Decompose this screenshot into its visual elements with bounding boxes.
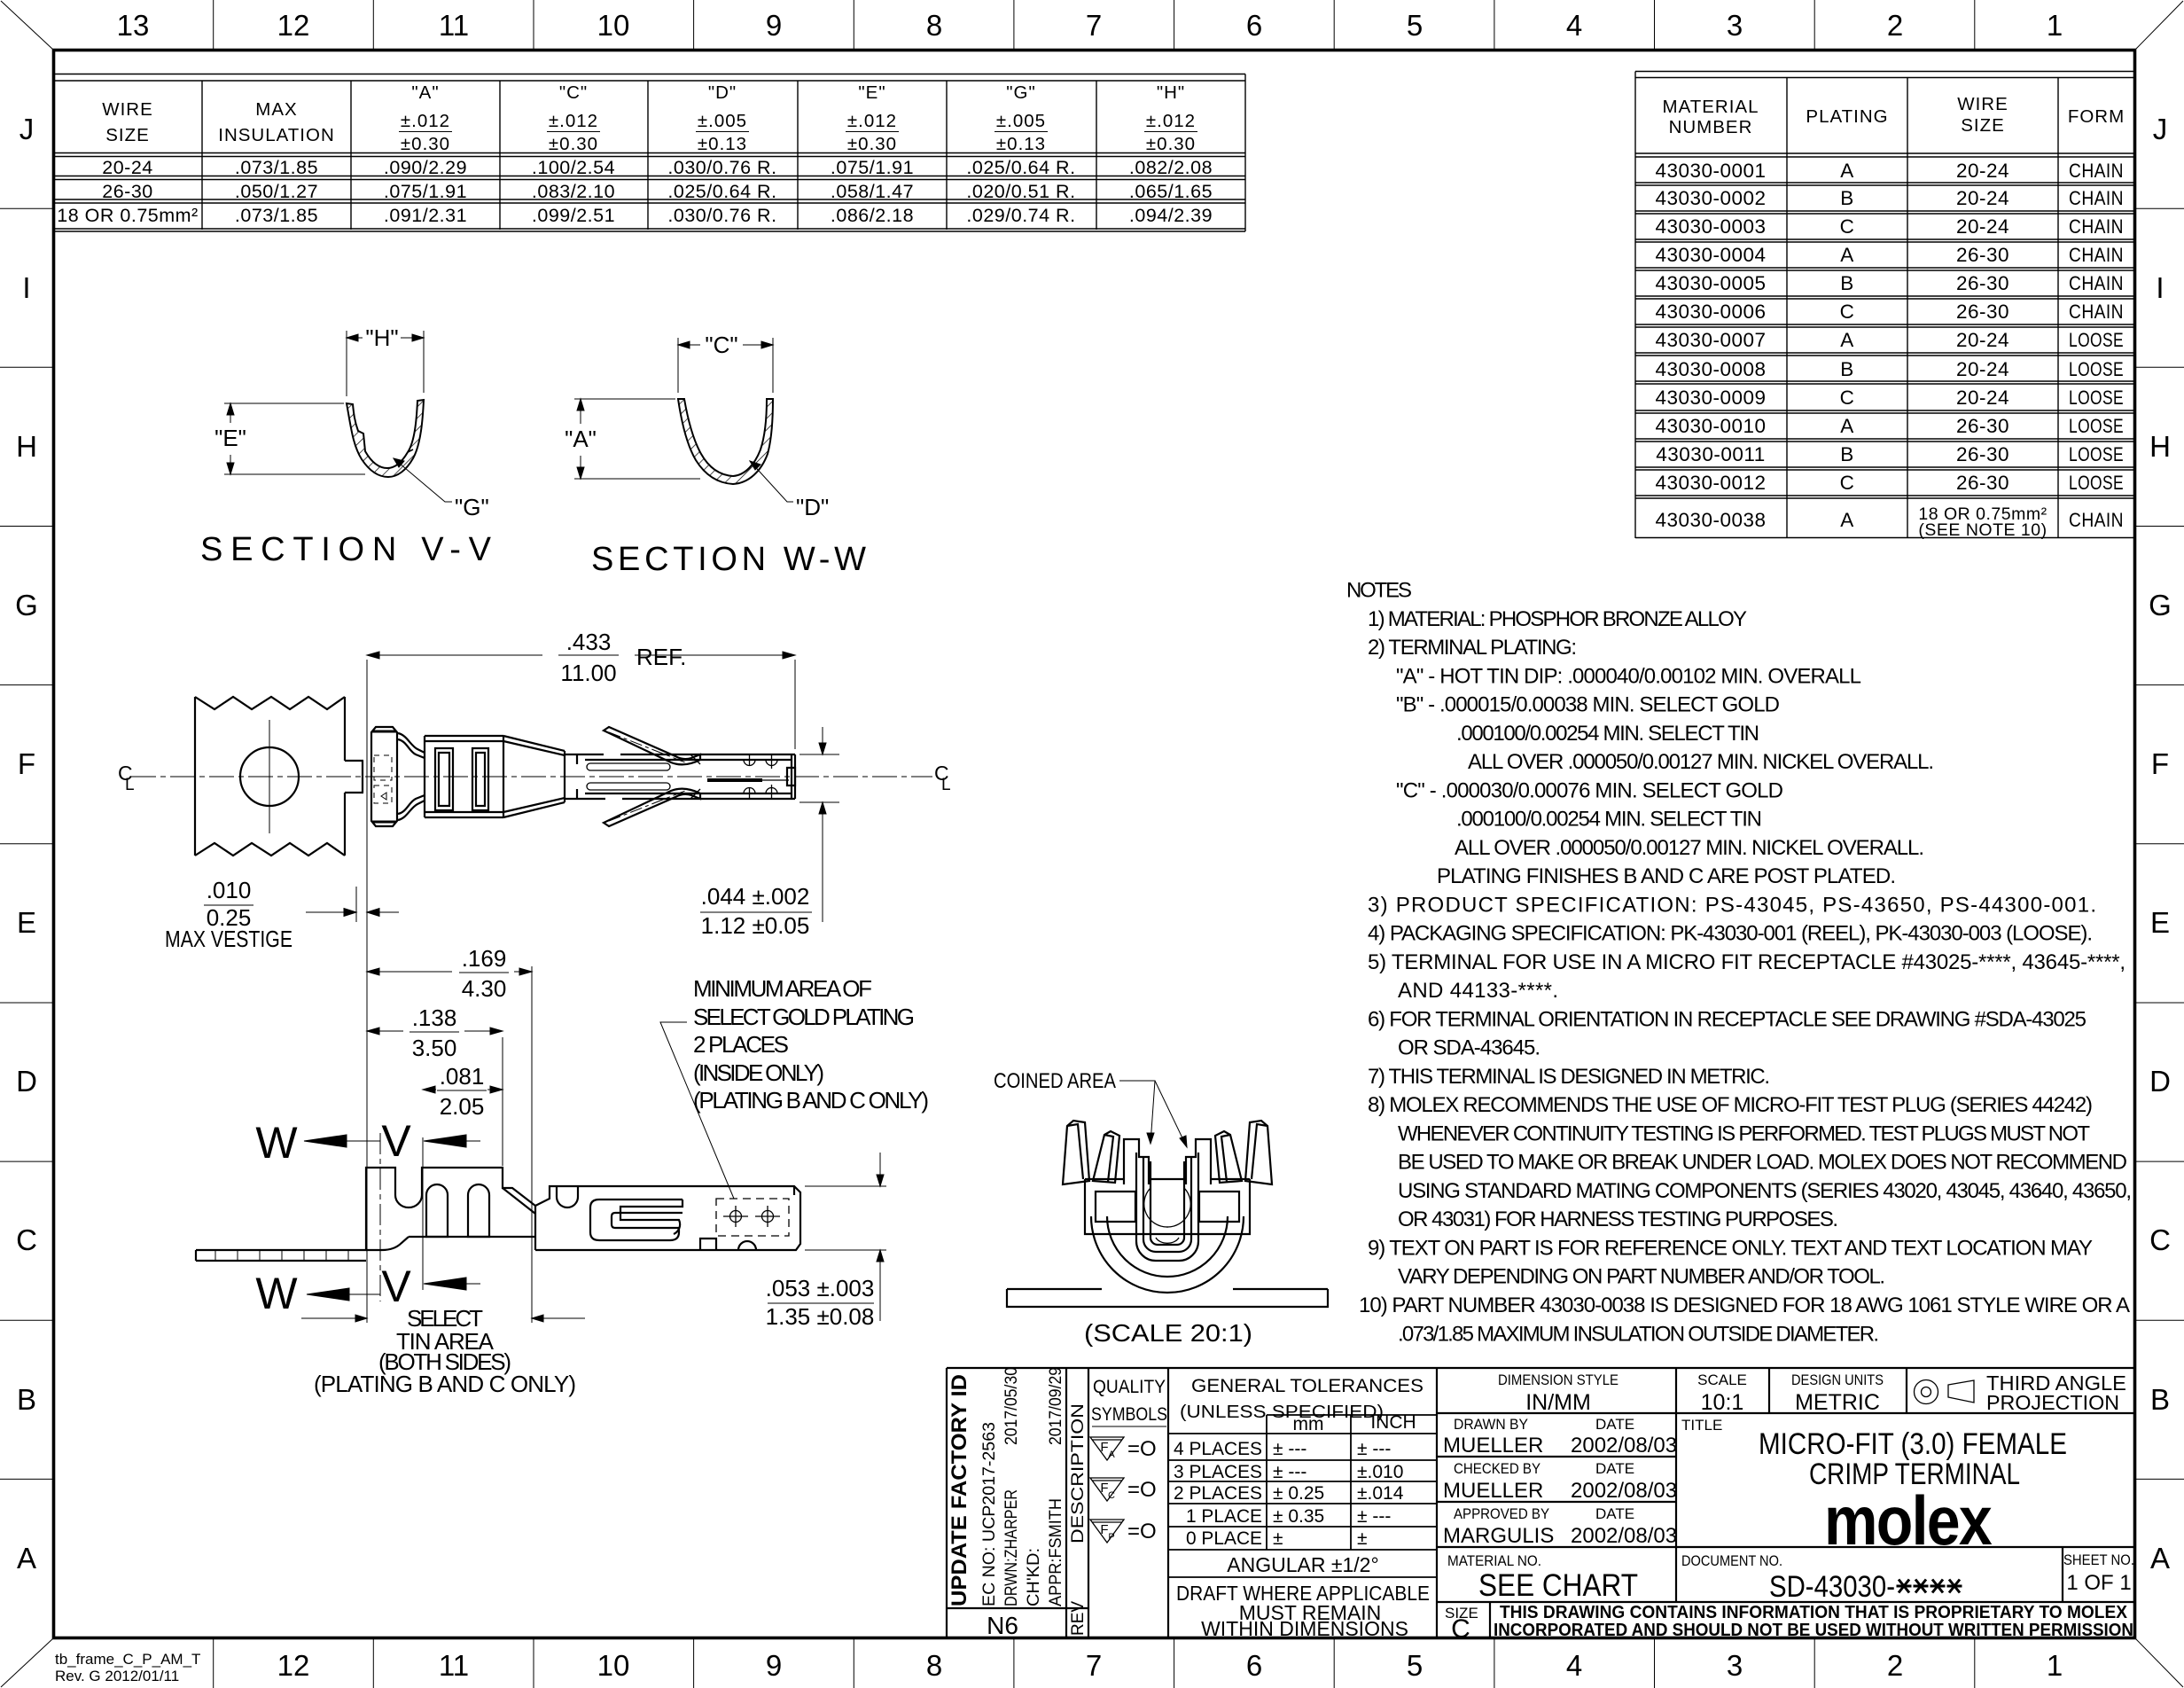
svg-text:DATE: DATE [1595,1416,1634,1433]
svg-text:H: H [2149,430,2171,463]
svg-text:AND 44133-****.: AND 44133-****. [1398,979,1558,1003]
svg-text:BE USED TO MAKE OR BREAK UNDER: BE USED TO MAKE OR BREAK UNDER LOAD. MOL… [1398,1151,2127,1175]
svg-text:F: F [1100,1522,1108,1537]
svg-text:NUMBER: NUMBER [1669,117,1753,137]
svg-text:2002/08/03: 2002/08/03 [1571,1524,1677,1548]
svg-text:10:1: 10:1 [1701,1390,1744,1415]
svg-text:± ---: ± --- [1357,1506,1391,1527]
svg-text:20-24: 20-24 [1956,160,2009,182]
svg-text:2 PLACES: 2 PLACES [693,1031,789,1058]
svg-text:10: 10 [597,9,630,42]
svg-text:.044 ±.002: .044 ±.002 [701,883,810,910]
svg-text:6: 6 [1246,9,1262,42]
svg-text:26-30: 26-30 [1956,301,2009,323]
svg-text:1: 1 [2047,9,2063,42]
svg-text:CHAIN: CHAIN [2069,244,2124,266]
svg-text:26-30: 26-30 [1956,415,2009,437]
svg-text:.138: .138 [412,1004,457,1031]
svg-text:C: C [1840,215,1855,238]
svg-text:"E": "E" [214,425,246,451]
svg-text:±0.30: ±0.30 [1146,134,1196,154]
svg-text:.030/0.76 R.: .030/0.76 R. [667,157,776,178]
svg-text:±0.13: ±0.13 [698,134,747,154]
svg-text:C: C [16,1223,37,1256]
svg-text:MATERIAL NO.: MATERIAL NO. [1447,1552,1541,1569]
svg-text:E: E [17,906,36,939]
svg-text:"C": "C" [559,82,588,103]
svg-text:3: 3 [1727,9,1743,42]
svg-text:DOCUMENT NO.: DOCUMENT NO. [1681,1552,1782,1569]
svg-text:ALL OVER .000050/0.00127 MIN.: ALL OVER .000050/0.00127 MIN. NICKEL OVE… [1468,750,1934,774]
svg-text:"G": "G" [1006,82,1036,103]
svg-text:43030-0008: 43030-0008 [1655,358,1766,380]
svg-text:A: A [1108,1450,1115,1460]
svg-text:±0.30: ±0.30 [401,134,450,154]
svg-text:"A" - HOT TIN DIP: .000040/0.0: "A" - HOT TIN DIP: .000040/0.00102 MIN. … [1396,664,1861,688]
svg-text:OR SDA-43645.: OR SDA-43645. [1398,1036,1540,1060]
svg-text:A: A [1840,509,1854,531]
svg-text:G: G [15,589,38,621]
svg-text:26-30: 26-30 [1956,272,2009,294]
svg-text:2 PLACES: 2 PLACES [1174,1483,1262,1504]
svg-text:2002/08/03: 2002/08/03 [1571,1479,1677,1503]
svg-text:B: B [17,1383,36,1416]
svg-text:.058/1.47: .058/1.47 [831,181,914,202]
svg-text:.050/1.27: .050/1.27 [235,181,318,202]
svg-text:3) PRODUCT SPECIFICATION: PS-4: 3) PRODUCT SPECIFICATION: PS-43045, PS-4… [1368,893,2096,917]
svg-text:.100/2.54: .100/2.54 [532,157,615,178]
svg-text:WHENEVER CONTINUITY TESTING IS: WHENEVER CONTINUITY TESTING IS PERFORMED… [1398,1121,2090,1145]
svg-text:±.005: ±.005 [996,111,1046,131]
svg-text:A: A [1840,160,1854,182]
svg-text:SEE CHART: SEE CHART [1478,1568,1638,1603]
svg-text:4) PACKAGING SPECIFICATION: PK: 4) PACKAGING SPECIFICATION: PK-43030-001… [1368,922,2093,946]
svg-text:NOTES: NOTES [1346,579,1412,603]
svg-text:12: 12 [277,1649,310,1682]
svg-text:UPDATE FACTORY ID: UPDATE FACTORY ID [948,1374,971,1606]
svg-text:±.012: ±.012 [549,111,598,131]
svg-text:1 OF 1: 1 OF 1 [2066,1571,2131,1595]
svg-text:3.50: 3.50 [412,1035,457,1061]
svg-text:6: 6 [1246,1649,1262,1682]
svg-text:43030-0038: 43030-0038 [1655,509,1766,531]
svg-text:DRWN:ZHARPER: DRWN:ZHARPER [1002,1489,1021,1606]
svg-text:.073/1.85 MAXIMUM INSULATION O: .073/1.85 MAXIMUM INSULATION OUTSIDE DIA… [1398,1322,1879,1346]
svg-text:METRIC: METRIC [1795,1390,1880,1415]
svg-text:3: 3 [1727,1649,1743,1682]
svg-text:EC NO: UCP2017-2563: EC NO: UCP2017-2563 [980,1422,999,1606]
svg-text:VARY DEPENDING ON PART NUMBER: VARY DEPENDING ON PART NUMBER AND/OR TOO… [1398,1265,1885,1289]
svg-text:5: 5 [1407,9,1423,42]
svg-text:.030/0.76 R.: .030/0.76 R. [667,205,776,226]
svg-text:L: L [941,776,951,794]
svg-text:.090/2.29: .090/2.29 [384,157,467,178]
svg-text:"E": "E" [858,82,885,103]
svg-text:CHAIN: CHAIN [2069,187,2124,209]
svg-text:±.005: ±.005 [698,111,747,131]
svg-text:11: 11 [439,9,469,42]
svg-text:7) THIS TERMINAL IS DESIGNED I: 7) THIS TERMINAL IS DESIGNED IN METRIC. [1368,1065,1770,1089]
svg-text:SECTION W-W: SECTION W-W [591,541,866,578]
svg-text:43030-0003: 43030-0003 [1655,215,1766,238]
svg-text:COINED AREA: COINED AREA [994,1069,1116,1093]
svg-text:.075/1.91: .075/1.91 [831,157,914,178]
svg-text:F: F [18,747,35,780]
svg-text:PLATING: PLATING [1806,106,1888,127]
svg-text:.433: .433 [566,629,612,655]
svg-text:2017/05/30: 2017/05/30 [1002,1367,1021,1445]
svg-text:4: 4 [1566,1649,1582,1682]
svg-text:2002/08/03: 2002/08/03 [1571,1434,1677,1457]
svg-text:TITLE: TITLE [1681,1417,1722,1434]
svg-text:IN/MM: IN/MM [1525,1390,1591,1415]
svg-text:8) MOLEX RECOMMENDS THE USE OF: 8) MOLEX RECOMMENDS THE USE OF MICRO-FIT… [1368,1093,2093,1117]
svg-text:J: J [2153,113,2168,145]
svg-text:20-24: 20-24 [1956,358,2009,380]
svg-text:G: G [2149,589,2172,621]
svg-text:± ---: ± --- [1273,1439,1306,1459]
svg-text:=O: =O [1127,1478,1157,1502]
svg-text:MAX VESTIGE: MAX VESTIGE [165,926,292,952]
svg-text:WIRE: WIRE [102,99,153,120]
svg-text:B: B [1840,272,1854,294]
svg-text:DESIGN UNITS: DESIGN UNITS [1791,1371,1884,1388]
svg-text:C: C [1840,301,1855,323]
svg-text:B: B [1840,187,1854,209]
svg-text:WIRE: WIRE [1957,94,2008,114]
svg-text:18 OR 0.75mm²: 18 OR 0.75mm² [57,205,198,226]
svg-text:PLATING FINISHES B AND C ARE P: PLATING FINISHES B AND C ARE POST PLATED… [1437,864,1896,888]
svg-text:.000100/0.00254 MIN. SELECT TI: .000100/0.00254 MIN. SELECT TIN [1456,808,1762,832]
svg-text:(SCALE 20:1): (SCALE 20:1) [1084,1319,1252,1347]
svg-text:SHEET NO.: SHEET NO. [2063,1551,2134,1568]
svg-text:I: I [22,271,30,304]
svg-text:.000100/0.00254 MIN. SELECT TI: .000100/0.00254 MIN. SELECT TIN [1456,722,1759,746]
svg-text:1.12 ±0.05: 1.12 ±0.05 [701,912,810,939]
svg-text:PROJECTION: PROJECTION [1986,1391,2119,1414]
svg-text:"H": "H" [365,324,398,351]
svg-text:P: P [1108,1532,1114,1543]
svg-text:"A": "A" [565,426,597,452]
svg-text:0 PLACE: 0 PLACE [1186,1528,1262,1549]
svg-text:26-30: 26-30 [1956,443,2009,465]
svg-text:5: 5 [1407,1649,1423,1682]
svg-text:±0.13: ±0.13 [996,134,1046,154]
svg-text:43030-0005: 43030-0005 [1655,272,1766,294]
svg-text:5) TERMINAL FOR USE IN A MICRO: 5) TERMINAL FOR USE IN A MICRO FIT RECEP… [1368,950,2125,974]
svg-text:.020/0.51 R.: .020/0.51 R. [966,181,1075,202]
svg-text:±.010: ±.010 [1357,1462,1403,1482]
svg-text:26-30: 26-30 [1956,244,2009,266]
svg-text:±.012: ±.012 [401,111,450,131]
svg-text:=O: =O [1127,1437,1157,1461]
svg-text:2) TERMINAL PLATING:: 2) TERMINAL PLATING: [1368,636,1577,660]
svg-text:.094/2.39: .094/2.39 [1129,205,1213,226]
svg-text:43030-0010: 43030-0010 [1655,415,1766,437]
svg-text:C: C [1840,387,1855,409]
svg-text:V: V [381,1262,411,1311]
svg-text:43030-0009: 43030-0009 [1655,387,1766,409]
svg-text:ANGULAR ±1/2°: ANGULAR ±1/2° [1227,1553,1378,1576]
svg-text:MINIMUM AREA OF: MINIMUM AREA OF [693,975,872,1002]
svg-text:.073/1.85: .073/1.85 [235,157,318,178]
svg-text:8: 8 [926,1649,942,1682]
svg-text:20-24: 20-24 [1956,215,2009,238]
svg-text:A: A [1840,244,1854,266]
svg-text:INCH: INCH [1370,1412,1416,1433]
svg-text:MARGULIS: MARGULIS [1443,1524,1554,1548]
svg-text:Rev. G 2012/01/11: Rev. G 2012/01/11 [55,1668,179,1684]
svg-text:DESCRIPTION: DESCRIPTION [1069,1403,1088,1543]
svg-text:.091/2.31: .091/2.31 [384,205,467,226]
svg-text:11.00: 11.00 [560,660,616,686]
svg-text:C: C [1108,1490,1115,1501]
svg-text:.082/2.08: .082/2.08 [1129,157,1213,178]
svg-text:A: A [17,1542,36,1575]
svg-text:SIZE: SIZE [1961,115,2005,136]
svg-text:B: B [1840,443,1854,465]
svg-text:GENERAL TOLERANCES: GENERAL TOLERANCES [1191,1376,1423,1396]
svg-text:1) MATERIAL: PHOSPHOR BRONZE A: 1) MATERIAL: PHOSPHOR BRONZE ALLOY [1368,607,1747,631]
svg-text:.025/0.64 R.: .025/0.64 R. [966,157,1075,178]
svg-text:I: I [2156,271,2164,304]
svg-text:.169: .169 [462,945,507,972]
svg-text:20-24: 20-24 [102,157,153,178]
svg-text:CHAIN: CHAIN [2069,215,2124,238]
svg-text:43030-0002: 43030-0002 [1655,187,1766,209]
svg-text:FORM: FORM [2068,106,2125,127]
svg-text:.073/1.85: .073/1.85 [235,205,318,226]
svg-text:C: C [2149,1223,2171,1256]
svg-text:INCORPORATED AND SHOULD NOT: INCORPORATED AND SHOULD NOT BE USED WITH… [1494,1620,2133,1640]
svg-text:.029/0.74 R.: .029/0.74 R. [966,205,1075,226]
svg-text:D: D [16,1065,37,1098]
svg-text:10) PART NUMBER 43030-0038 IS: 10) PART NUMBER 43030-0038 IS DESIGNED F… [1359,1293,2130,1317]
svg-text:E: E [2150,906,2170,939]
svg-text:.053 ±.003: .053 ±.003 [766,1275,875,1301]
svg-text:SYMBOLS: SYMBOLS [1091,1404,1167,1425]
svg-text:±.012: ±.012 [1146,111,1196,131]
svg-text:USING STANDARD MATING COMPONEN: USING STANDARD MATING COMPONENTS (SERIES… [1398,1179,2132,1203]
svg-text:SD-43030-: SD-43030- [1769,1570,1895,1604]
svg-text:(PLATING B AND C ONLY): (PLATING B AND C ONLY) [314,1371,576,1397]
svg-text:43030-0011: 43030-0011 [1656,443,1765,465]
svg-text:13: 13 [117,9,150,42]
svg-text:CHECKED BY: CHECKED BY [1454,1460,1540,1477]
svg-text:A: A [1840,329,1854,351]
svg-text:DATE: DATE [1595,1505,1634,1522]
svg-text:10: 10 [597,1649,630,1682]
svg-text:1 PLACE: 1 PLACE [1186,1506,1262,1527]
svg-text:"A": "A" [411,82,439,103]
svg-text:1.35 ±0.08: 1.35 ±0.08 [766,1303,875,1330]
svg-text:MATERIAL: MATERIAL [1663,97,1759,117]
svg-text:DRAWN BY: DRAWN BY [1454,1416,1528,1433]
svg-text:CHAIN: CHAIN [2069,160,2124,182]
svg-text:C: C [1451,1614,1470,1644]
svg-text:CHAIN: CHAIN [2069,301,2124,323]
svg-text:43030-0001: 43030-0001 [1655,160,1766,182]
svg-text:43030-0012: 43030-0012 [1655,472,1766,494]
svg-text:26-30: 26-30 [1956,472,2009,494]
svg-text:N6: N6 [987,1612,1018,1639]
svg-text:B: B [1840,358,1854,380]
svg-text:±: ± [1357,1528,1368,1549]
svg-text:J: J [19,113,35,145]
svg-text:43030-0007: 43030-0007 [1655,329,1766,351]
svg-text:OR 43031) FOR HARNESS TESTING: OR 43031) FOR HARNESS TESTING PURPOSES. [1398,1207,1838,1231]
svg-text:A: A [2150,1542,2170,1575]
svg-text:3 PLACES: 3 PLACES [1174,1462,1262,1482]
svg-text:9: 9 [766,9,782,42]
svg-text:MUELLER: MUELLER [1443,1479,1543,1503]
svg-text:26-30: 26-30 [102,181,153,202]
svg-text:SIZE: SIZE [105,125,150,145]
svg-text:CHAIN: CHAIN [2069,509,2124,531]
svg-text:"C": "C" [705,332,737,358]
svg-text:.025/0.64 R.: .025/0.64 R. [667,181,776,202]
svg-text:V: V [381,1116,411,1166]
svg-text:A: A [1840,415,1854,437]
svg-text:±.014: ±.014 [1357,1483,1404,1504]
svg-text:4.30: 4.30 [462,975,507,1002]
svg-text:"G": "G" [455,494,489,520]
svg-text:L: L [125,776,135,794]
svg-text:(UNLESS SPECIFIED): (UNLESS SPECIFIED) [1180,1403,1384,1422]
svg-text:.010: .010 [207,877,252,903]
svg-text:2017/09/29: 2017/09/29 [1047,1367,1065,1445]
svg-text:D: D [2149,1065,2171,1098]
svg-text:MAX: MAX [255,99,297,120]
svg-text:2: 2 [1887,1649,1903,1682]
svg-text:DATE: DATE [1595,1460,1634,1477]
svg-text:ALL OVER .000050/0.00127 MIN.: ALL OVER .000050/0.00127 MIN. NICKEL OVE… [1455,836,1924,860]
svg-text:"H": "H" [1157,82,1185,103]
svg-text:1: 1 [2047,1649,2063,1682]
svg-text:W: W [255,1118,298,1168]
svg-text:MUELLER: MUELLER [1443,1434,1543,1457]
svg-text:.075/1.91: .075/1.91 [384,181,467,202]
svg-text:SCALE: SCALE [1697,1371,1747,1388]
svg-text:(PLATING B AND C ONLY): (PLATING B AND C ONLY) [693,1087,929,1114]
svg-text:QUALITY: QUALITY [1093,1377,1166,1397]
svg-text:"B" - .000015/0.00038 MIN. SEL: "B" - .000015/0.00038 MIN. SELECT GOLD [1396,693,1780,717]
svg-text:(SEE NOTE 10): (SEE NOTE 10) [1918,520,2047,540]
svg-text:CH'KD:: CH'KD: [1025,1548,1043,1606]
svg-text:tb_frame_C_P_AM_T: tb_frame_C_P_AM_T [55,1651,200,1668]
svg-text:LOOSE: LOOSE [2069,329,2124,351]
svg-text:"D": "D" [796,494,829,520]
svg-text:DIMENSION STYLE: DIMENSION STYLE [1498,1371,1618,1388]
svg-text:43030-0004: 43030-0004 [1655,244,1766,266]
svg-text:W: W [255,1269,298,1318]
svg-text:molex: molex [1824,1481,1992,1559]
svg-text:"D": "D" [708,82,737,103]
svg-text:±: ± [1273,1528,1283,1549]
svg-text:43030-0006: 43030-0006 [1655,301,1766,323]
svg-text:7: 7 [1086,1649,1102,1682]
svg-text:mm: mm [1293,1414,1324,1434]
svg-text:± ---: ± --- [1273,1462,1306,1482]
svg-text:.083/2.10: .083/2.10 [532,181,615,202]
svg-text:±0.30: ±0.30 [549,134,598,154]
svg-text:9: 9 [766,1649,782,1682]
svg-text:±.012: ±.012 [847,111,897,131]
svg-text:.065/1.65: .065/1.65 [1129,181,1213,202]
svg-text:LOOSE: LOOSE [2069,358,2124,380]
svg-text:LOOSE: LOOSE [2069,415,2124,437]
svg-text:4: 4 [1566,9,1582,42]
svg-text:C: C [1840,472,1855,494]
svg-text:B: B [2150,1383,2170,1416]
svg-text:.099/2.51: .099/2.51 [532,205,615,226]
svg-text:APPR:FSMITH: APPR:FSMITH [1047,1498,1065,1606]
svg-text:9) TEXT ON PART IS FOR REFEREN: 9) TEXT ON PART IS FOR REFERENCE ONLY. T… [1368,1237,2093,1261]
svg-text:20-24: 20-24 [1956,387,2009,409]
svg-text:LOOSE: LOOSE [2069,387,2124,409]
svg-text:F: F [2151,747,2169,780]
svg-text:12: 12 [277,9,310,42]
svg-text:2.05: 2.05 [440,1093,485,1120]
svg-text:2: 2 [1887,9,1903,42]
svg-text:REF.: REF. [636,644,686,670]
svg-text:MICRO-FIT (3.0) FEMALE: MICRO-FIT (3.0) FEMALE [1759,1427,2067,1461]
svg-text:.081: .081 [440,1063,485,1090]
svg-text:F: F [1100,1440,1108,1455]
svg-text:6) FOR TERMINAL ORIENTATION IN: 6) FOR TERMINAL ORIENTATION IN RECEPTACL… [1368,1007,2086,1031]
svg-text:LOOSE: LOOSE [2069,443,2124,465]
svg-text:WITHIN DIMENSIONS: WITHIN DIMENSIONS [1201,1617,1408,1640]
svg-text:± 0.25: ± 0.25 [1273,1483,1324,1504]
svg-text:11: 11 [439,1649,469,1682]
svg-text:REV: REV [1069,1601,1088,1636]
svg-text:APPROVED BY: APPROVED BY [1454,1505,1549,1522]
svg-text:7: 7 [1086,9,1102,42]
svg-text:4 PLACES: 4 PLACES [1174,1439,1262,1459]
svg-text:± 0.35: ± 0.35 [1273,1506,1324,1527]
svg-text:LOOSE: LOOSE [2069,472,2124,494]
svg-text:±0.30: ±0.30 [847,134,897,154]
svg-text:± ---: ± --- [1357,1439,1391,1459]
svg-text:20-24: 20-24 [1956,187,2009,209]
svg-text:CHAIN: CHAIN [2069,272,2124,294]
svg-text:INSULATION: INSULATION [218,125,335,145]
svg-text:.086/2.18: .086/2.18 [831,205,914,226]
svg-text:H: H [16,430,37,463]
svg-text:=O: =O [1127,1520,1157,1543]
svg-text:8: 8 [926,9,942,42]
svg-text:(INSIDE ONLY): (INSIDE ONLY) [693,1059,824,1086]
svg-text:"C" - .000030/0.00076 MIN. SEL: "C" - .000030/0.00076 MIN. SELECT GOLD [1396,778,1783,802]
svg-text:20-24: 20-24 [1956,329,2009,351]
svg-text:SELECT GOLD PLATING: SELECT GOLD PLATING [693,1004,915,1030]
